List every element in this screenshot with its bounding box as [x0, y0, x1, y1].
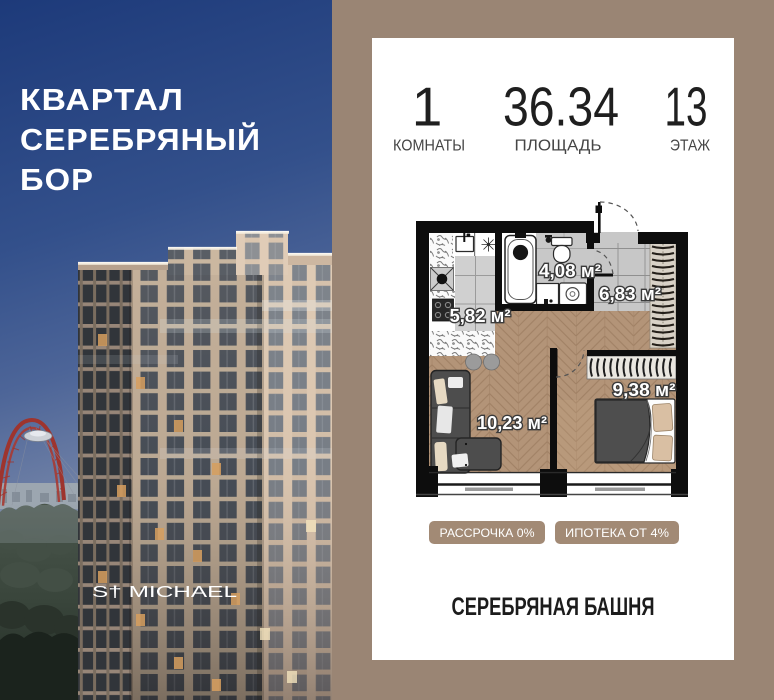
- svg-text:КВАРТАЛ: КВАРТАЛ: [20, 82, 184, 117]
- svg-text:ИПОТЕКА ОТ 4%: ИПОТЕКА ОТ 4%: [565, 528, 669, 540]
- svg-text:1: 1: [412, 76, 443, 138]
- svg-text:10,23 м²: 10,23 м²: [477, 413, 547, 433]
- svg-text:ЭТАЖ: ЭТАЖ: [670, 138, 710, 155]
- svg-text:9,38 м²: 9,38 м²: [613, 380, 676, 400]
- svg-text:13: 13: [665, 76, 708, 138]
- svg-text:5,82 м²: 5,82 м²: [450, 306, 511, 326]
- svg-text:СЕРЕБРЯНАЯ БАШНЯ: СЕРЕБРЯНАЯ БАШНЯ: [452, 593, 655, 621]
- svg-text:БОР: БОР: [20, 162, 94, 197]
- svg-text:КОМНАТЫ: КОМНАТЫ: [393, 138, 465, 155]
- svg-text:СЕРЕБРЯНЫЙ: СЕРЕБРЯНЫЙ: [20, 121, 261, 157]
- svg-text:РАССРОЧКА 0%: РАССРОЧКА 0%: [440, 528, 535, 540]
- svg-text:6,83 м²: 6,83 м²: [599, 284, 661, 304]
- svg-text:ПЛОЩАДЬ: ПЛОЩАДЬ: [515, 138, 602, 155]
- svg-text:S† MICHAEL: S† MICHAEL: [92, 584, 237, 601]
- svg-text:4,08 м²: 4,08 м²: [539, 261, 601, 281]
- svg-text:36.34: 36.34: [503, 76, 619, 138]
